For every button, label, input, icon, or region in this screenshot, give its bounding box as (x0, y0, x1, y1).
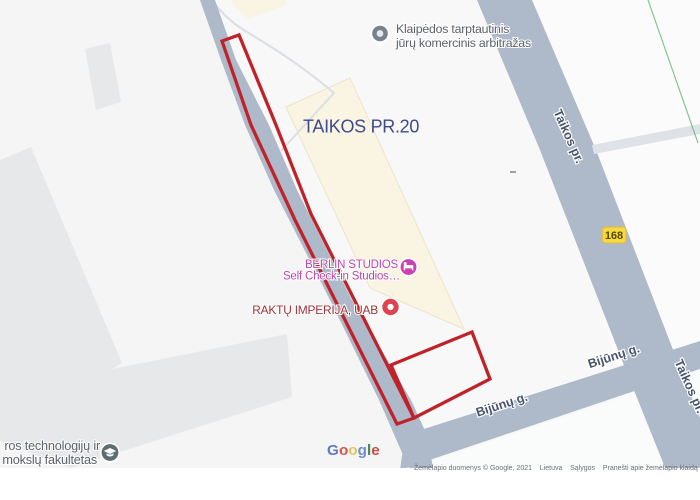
svg-text:Žemėlapio duomenys © Google, 2: Žemėlapio duomenys © Google, 2021 Lietuv… (414, 463, 698, 472)
svg-text:Self Check-in Studios…: Self Check-in Studios… (283, 271, 400, 283)
svg-text:Klaipėdos tarptautinis: Klaipėdos tarptautinis (396, 22, 509, 36)
svg-text:g: g (358, 442, 367, 459)
svg-text:ros technologijų ir: ros technologijų ir (4, 439, 101, 453)
svg-text:o: o (339, 442, 348, 459)
svg-text:jūrų komercinis arbitražas: jūrų komercinis arbitražas (395, 36, 531, 50)
svg-text:G: G (327, 442, 339, 459)
svg-text:mokslų fakultetas: mokslų fakultetas (2, 453, 97, 467)
svg-text:BERLIN STUDIOS: BERLIN STUDIOS (305, 259, 399, 271)
svg-text:TAIKOS PR.20: TAIKOS PR.20 (303, 117, 419, 137)
svg-text:168: 168 (605, 230, 623, 242)
svg-text:o: o (348, 442, 357, 459)
svg-text:RAKTŲ IMPERIJA, UAB: RAKTŲ IMPERIJA, UAB (252, 303, 378, 317)
svg-text:e: e (371, 442, 379, 459)
